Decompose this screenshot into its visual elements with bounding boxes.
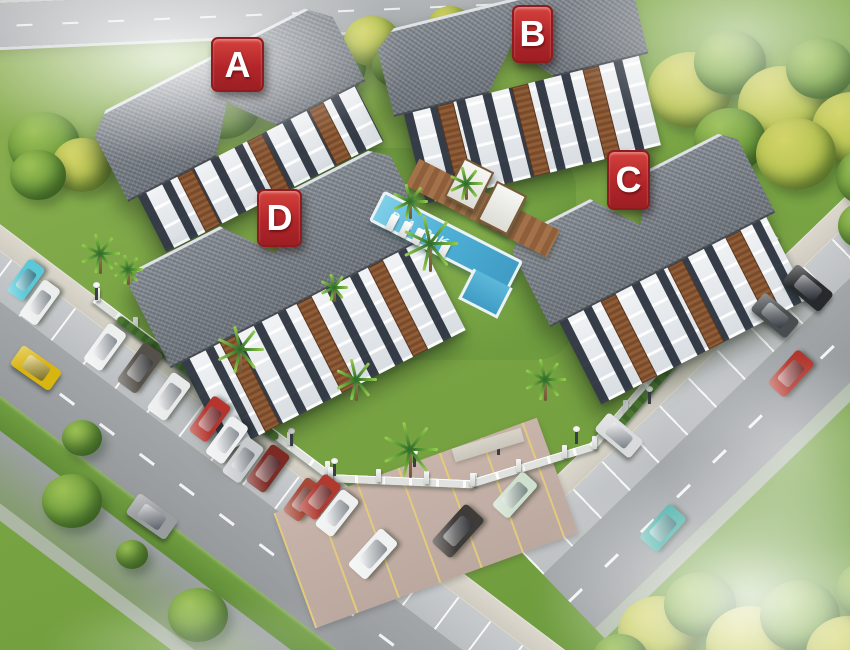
fence-pillar (424, 471, 429, 484)
street-lamp (333, 462, 336, 476)
palm-frond (240, 348, 264, 351)
street-lamp (575, 430, 578, 444)
green-tree (10, 150, 66, 200)
wood-panel (512, 83, 551, 176)
fence-pillar (376, 469, 381, 482)
wood-panel (296, 297, 357, 394)
fence-pillar (516, 459, 521, 472)
street-lamp (95, 286, 98, 300)
building-label-c: C (607, 150, 650, 210)
green-tree (116, 540, 148, 569)
wood-panel (368, 260, 429, 357)
fence-pillar (592, 436, 597, 449)
fence-pillar (470, 473, 475, 486)
building-label-d: D (257, 189, 302, 247)
wood-panel (667, 260, 724, 350)
scene: PARK ABCD (0, 0, 850, 650)
palm-frond (410, 448, 438, 451)
street-lamp (648, 390, 651, 404)
building-label-a: A (211, 37, 264, 92)
palm-frond (430, 242, 458, 245)
palm-frond (409, 427, 428, 450)
green-tree (62, 420, 102, 456)
wood-panel (601, 294, 658, 384)
fence-pillar (562, 445, 567, 458)
green-tree (42, 474, 102, 528)
building-label-b: B (512, 5, 553, 63)
wood-panel (177, 169, 220, 232)
street-lamp (290, 432, 293, 446)
